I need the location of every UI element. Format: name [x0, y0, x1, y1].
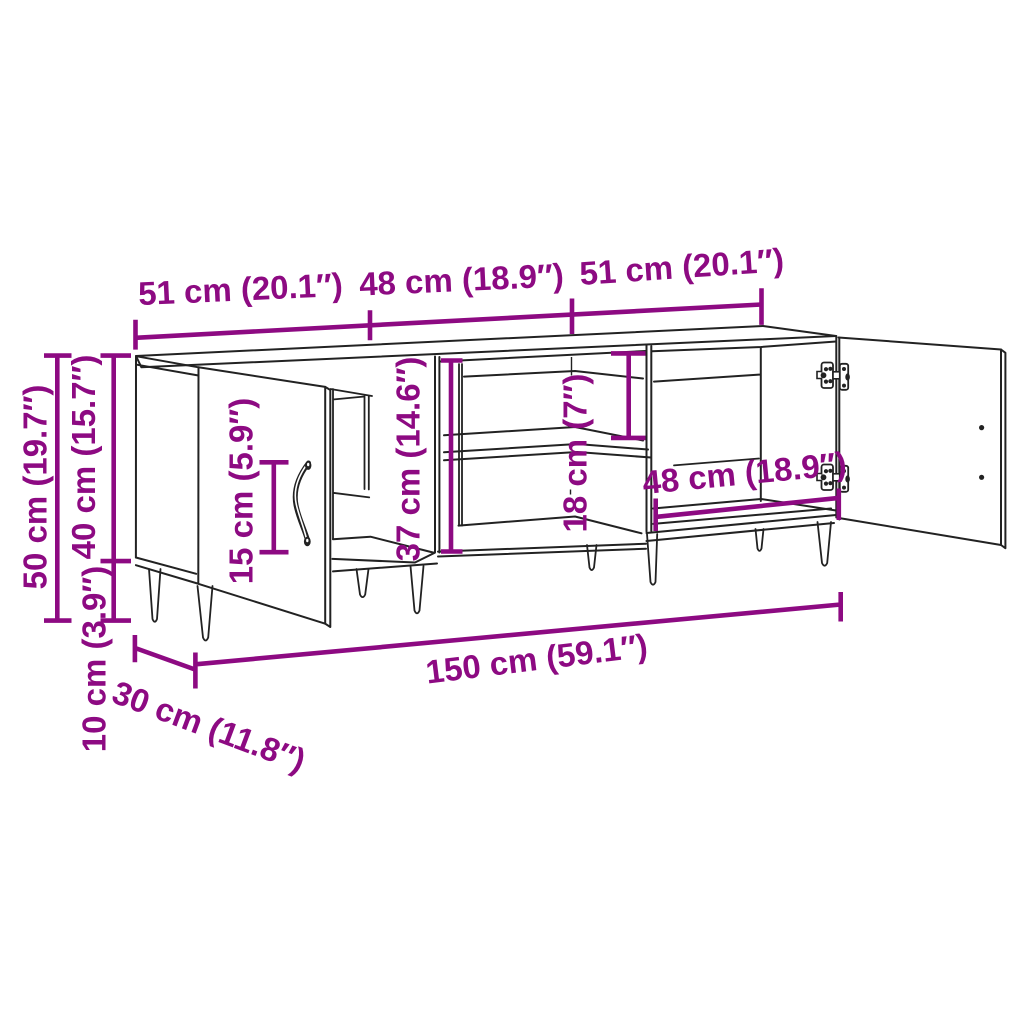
svg-text:30 cm (11.8″): 30 cm (11.8″) [108, 673, 311, 779]
svg-text:48 cm (18.9″): 48 cm (18.9″) [641, 445, 848, 501]
svg-text:15 cm (5.9″): 15 cm (5.9″) [223, 398, 260, 584]
svg-text:150 cm (59.1″): 150 cm (59.1″) [424, 627, 650, 691]
svg-text:50 cm (19.7″): 50 cm (19.7″) [17, 385, 54, 590]
svg-text:10 cm (3.9″): 10 cm (3.9″) [76, 566, 113, 752]
svg-text:51 cm (20.1″): 51 cm (20.1″) [137, 266, 343, 312]
svg-text:18 cm (7″): 18 cm (7″) [557, 374, 594, 533]
svg-text:37 cm (14.6″): 37 cm (14.6″) [390, 357, 427, 562]
svg-text:48 cm (18.9″): 48 cm (18.9″) [358, 256, 564, 302]
svg-text:40 cm (15.7″): 40 cm (15.7″) [65, 355, 102, 560]
svg-text:51 cm (20.1″): 51 cm (20.1″) [578, 241, 785, 292]
